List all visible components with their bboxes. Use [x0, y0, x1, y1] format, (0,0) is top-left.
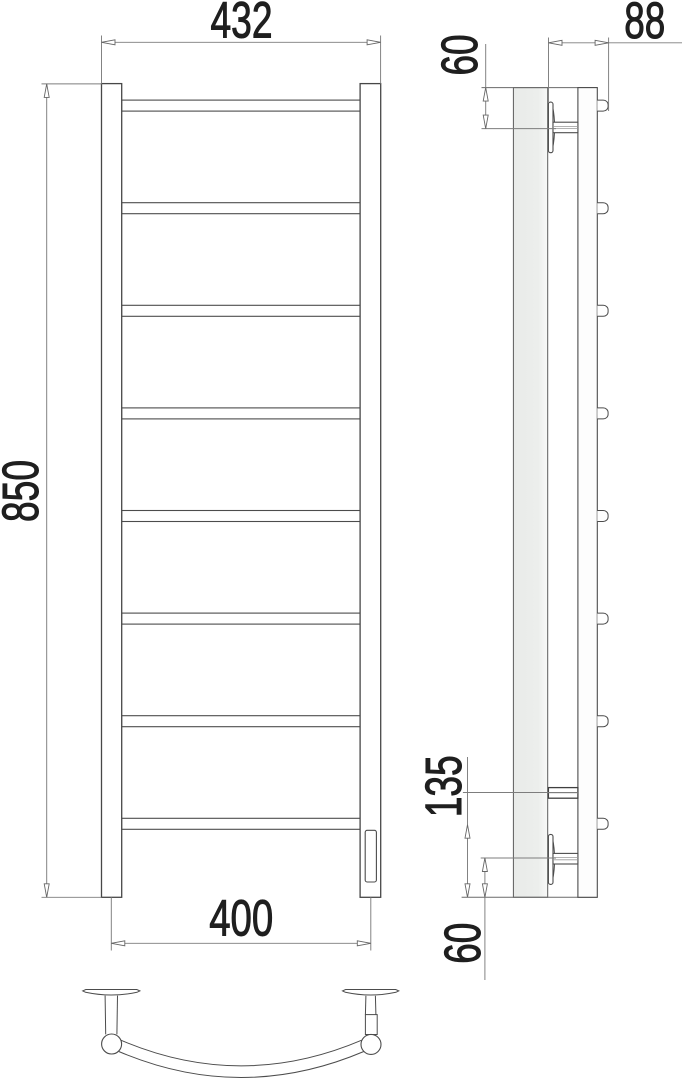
svg-text:432: 432 — [211, 0, 273, 49]
svg-text:135: 135 — [415, 755, 472, 817]
svg-text:60: 60 — [434, 923, 491, 964]
svg-text:850: 850 — [0, 460, 49, 522]
svg-text:400: 400 — [209, 890, 273, 947]
svg-text:60: 60 — [431, 35, 488, 76]
svg-text:88: 88 — [624, 0, 665, 49]
